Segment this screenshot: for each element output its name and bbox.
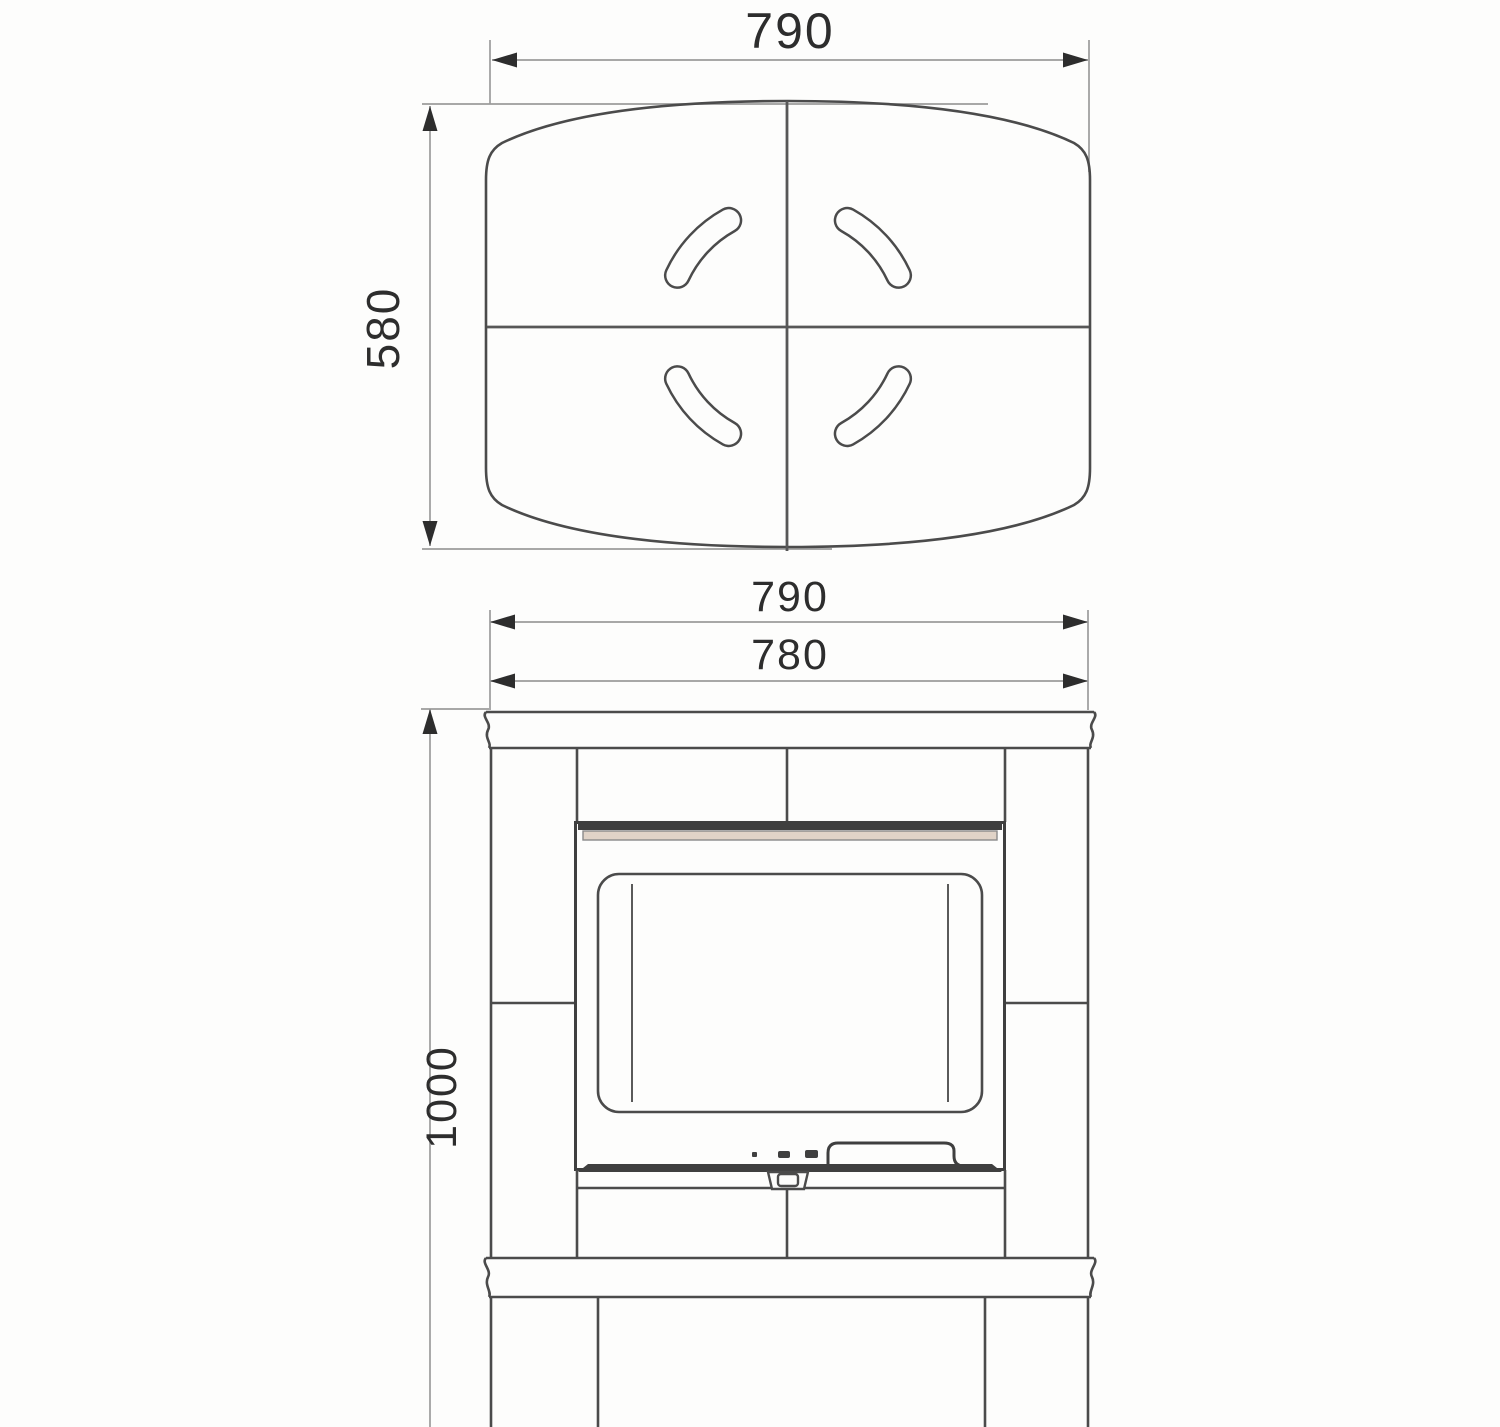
- lower-panel-row: [577, 1170, 1005, 1258]
- arrowhead-up: [423, 709, 438, 734]
- vent-slot-upper-left: [677, 220, 728, 275]
- vent-slot-upper-right: [847, 220, 898, 275]
- top-view: 790 580: [357, 3, 1090, 551]
- top-width-label: 790: [745, 3, 834, 59]
- stove-door: [576, 823, 1005, 1173]
- arrowhead-left: [490, 615, 515, 630]
- arrowhead-left: [490, 674, 515, 689]
- upper-tile-row: [577, 749, 1005, 822]
- front-view-body-width-dimension: 780: [490, 631, 1088, 689]
- shelf-right-scallop: [1090, 1258, 1095, 1297]
- vent-dot-medium: [778, 1151, 790, 1158]
- latch-knob: [778, 1174, 798, 1186]
- front-height-label: 1000: [418, 1045, 466, 1149]
- top-slab: [485, 712, 1096, 748]
- top-view-width-dimension: 790: [490, 3, 1089, 172]
- arrowhead-up: [423, 106, 438, 131]
- door-latch: [768, 1172, 808, 1189]
- vent-dot-large: [805, 1150, 818, 1158]
- technical-drawing: 790 580: [0, 0, 1500, 1427]
- air-control-dots: [752, 1150, 818, 1158]
- front-view-height-dimension: 1000: [418, 709, 489, 1427]
- arrowhead-right: [1063, 53, 1088, 68]
- arrowhead-right: [1063, 674, 1088, 689]
- door-handle: [828, 1143, 964, 1166]
- front-view: 790 780 1000: [418, 573, 1095, 1427]
- drawing-canvas: 790 580: [0, 0, 1500, 1427]
- vent-dot-small: [752, 1152, 757, 1157]
- vent-slot-lower-left: [677, 379, 728, 434]
- front-body-width-label: 780: [751, 631, 829, 679]
- arrowhead-left: [492, 53, 517, 68]
- slab-right-scallop: [1090, 712, 1095, 748]
- shelf-left-scallop: [485, 1258, 490, 1297]
- base-plinth: [491, 1297, 1088, 1427]
- top-depth-label: 580: [357, 287, 409, 370]
- top-plate-centerlines: [487, 101, 1089, 551]
- door-glass: [598, 874, 982, 1112]
- door-gasket-band: [583, 831, 997, 840]
- front-width-label: 790: [751, 573, 829, 621]
- arrowhead-right: [1063, 615, 1088, 630]
- arrowhead-down: [423, 521, 438, 546]
- shelf-slab: [485, 1258, 1096, 1297]
- vent-slot-lower-right: [847, 379, 898, 434]
- slab-left-scallop: [485, 712, 490, 748]
